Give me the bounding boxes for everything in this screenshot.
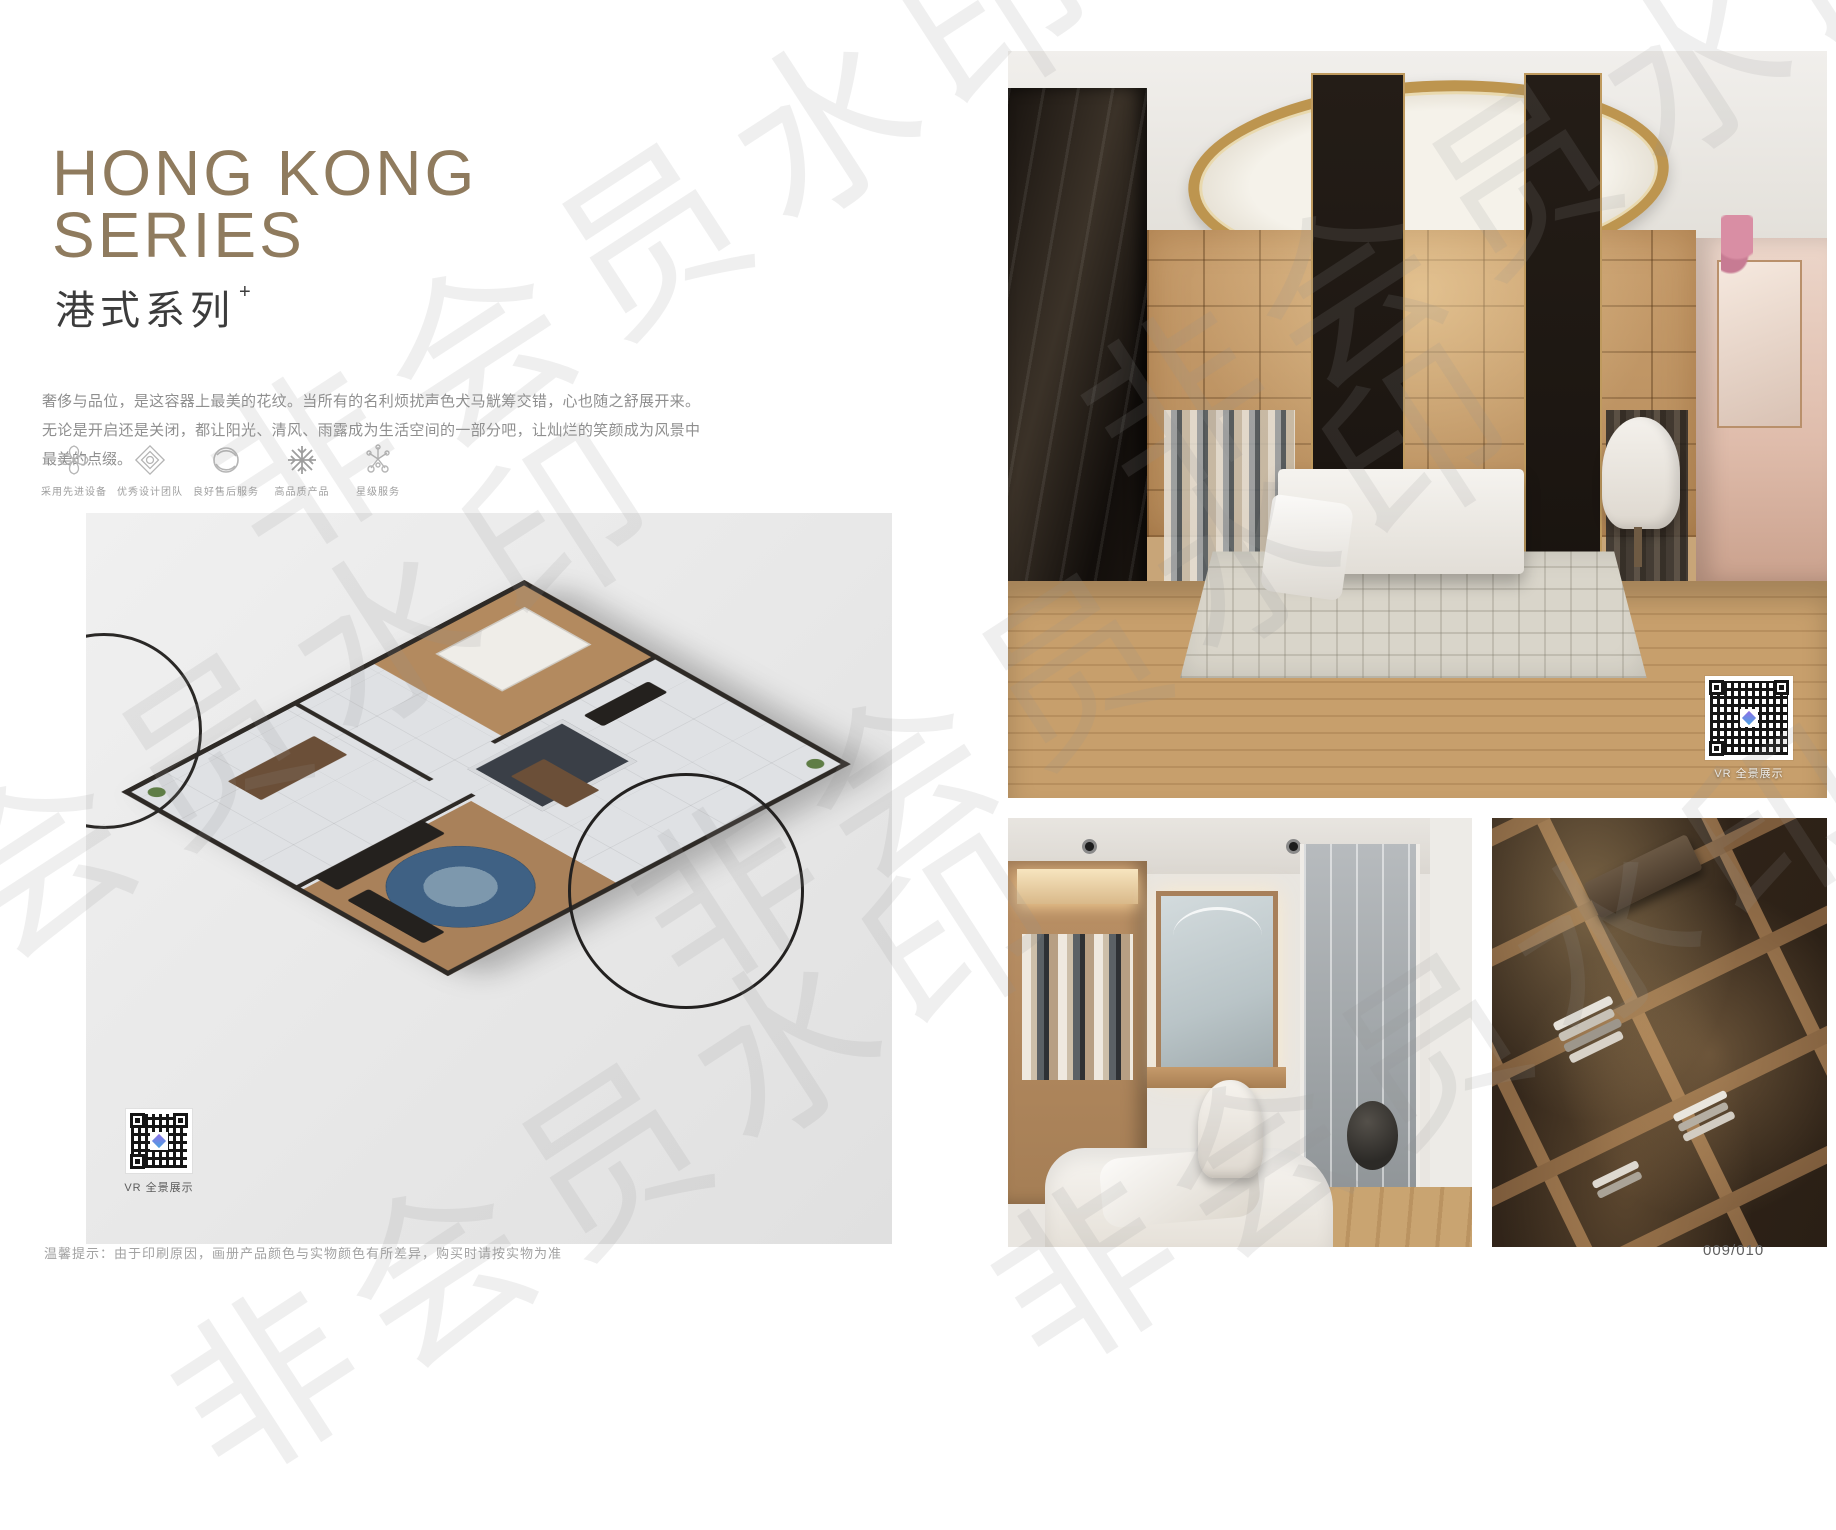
photo-qr-code <box>1705 676 1793 760</box>
plus-mark: + <box>239 281 256 303</box>
photo-vr-block: VR 全景展示 <box>1703 676 1795 781</box>
shelf-closeup-photo <box>1492 818 1827 1247</box>
feature-item: 星级服务 <box>346 443 410 498</box>
qr-marker <box>1774 680 1789 695</box>
feature-label: 良好售后服务 <box>193 483 259 498</box>
vanity-chair <box>1602 417 1680 529</box>
qr-marker <box>173 1113 188 1128</box>
series-title-en-line1: HONG KONG <box>52 142 477 204</box>
snowflake-icon <box>285 443 319 477</box>
star-service-icon <box>361 443 395 477</box>
feature-label: 优秀设计团队 <box>117 483 183 498</box>
throw-blanket <box>1260 494 1355 602</box>
dressing-area-photo <box>1008 818 1472 1247</box>
floorplan-qr-code <box>126 1109 192 1173</box>
feature-item: 良好售后服务 <box>194 443 258 498</box>
flowers <box>1721 215 1754 282</box>
page-number: 009/010 <box>1703 1242 1764 1259</box>
floorplan-render-image: VR 全景展示 <box>86 513 892 1244</box>
vanity-mirror <box>1156 891 1277 1081</box>
feature-item: 采用先进设备 <box>42 443 106 498</box>
round-side-table <box>1347 1101 1398 1170</box>
ring-icon <box>209 443 243 477</box>
footer-disclaimer: 温馨提示：由于印刷原因，画册产品颜色与实物颜色有所差异，购买时请按实物为准 <box>44 1243 562 1262</box>
series-title-en: HONG KONG SERIES <box>52 142 477 266</box>
series-title-cn: 港式系列+ <box>55 278 252 336</box>
catalog-page: { "page": { "title_en_line1": "HONG KONG… <box>0 0 1836 1307</box>
cloakroom-photo: VR 全景展示 <box>1008 51 1827 798</box>
feature-label: 星级服务 <box>356 483 400 498</box>
floorplan-vr-label: VR 全景展示 <box>120 1179 198 1195</box>
balcony-railing <box>568 773 804 1009</box>
qr-marker <box>130 1113 145 1128</box>
qr-marker <box>1709 680 1724 695</box>
feature-label: 采用先进设备 <box>41 483 107 498</box>
qr-marker <box>130 1154 145 1169</box>
feature-item: 优秀设计团队 <box>118 443 182 498</box>
series-title-en-line2: SERIES <box>52 204 477 266</box>
hanging-clothes <box>1022 934 1133 1080</box>
pinwheel-icon <box>57 443 91 477</box>
ornament-icon <box>133 443 167 477</box>
wood-floor <box>1324 1187 1472 1247</box>
series-title-cn-text: 港式系列 <box>55 289 235 333</box>
vanity-chair <box>1198 1080 1263 1179</box>
wall <box>1430 818 1472 1247</box>
shelf-lighting <box>1017 869 1138 903</box>
vanity-mirror <box>1717 260 1803 428</box>
feature-item: 高品质产品 <box>270 443 334 498</box>
vr-cube-icon <box>150 1132 168 1150</box>
floorplan-vr-block: VR 全景展示 <box>120 1109 198 1195</box>
feature-label: 高品质产品 <box>275 483 330 498</box>
photo-vr-label: VR 全景展示 <box>1703 765 1795 781</box>
feature-list: 采用先进设备 优秀设计团队 良好售后服务 高品质产品 <box>42 443 410 498</box>
vr-cube-icon <box>1740 709 1758 727</box>
qr-marker <box>1709 741 1724 756</box>
